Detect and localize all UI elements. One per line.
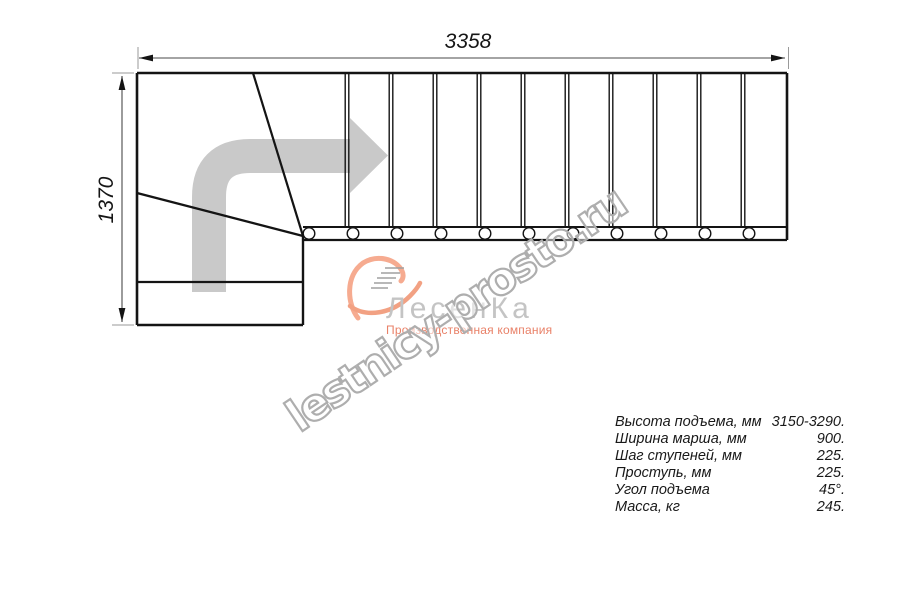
spec-value: 900. (817, 431, 845, 448)
spec-value: 245. (817, 499, 845, 516)
spec-value: 225. (817, 465, 845, 482)
spec-row: Угол подъема 45°. (615, 482, 845, 499)
spec-label: Шаг ступеней, мм (615, 448, 742, 465)
spec-value: 225. (817, 448, 845, 465)
spec-value: 3150-3290. (772, 414, 845, 431)
spec-row: Проступь, мм 225. (615, 465, 845, 482)
spec-label: Масса, кг (615, 499, 680, 516)
top-dimension-label: 3358 (400, 30, 536, 54)
spec-row: Масса, кг 245. (615, 499, 845, 516)
logo-steps-lines (371, 268, 404, 288)
spec-label: Угол подъема (615, 482, 710, 499)
spec-label: Высота подъема, мм (615, 414, 762, 431)
tread-division-lines (345, 73, 745, 226)
spec-label: Проступь, мм (615, 465, 711, 482)
left-dimension-label: 1370 (95, 154, 117, 246)
spec-label: Ширина марша, мм (615, 431, 747, 448)
spec-row: Ширина марша, мм 900. (615, 431, 845, 448)
spec-table: Высота подъема, мм 3150-3290. Ширина мар… (615, 414, 845, 516)
spec-row: Шаг ступеней, мм 225. (615, 448, 845, 465)
spec-value: 45°. (819, 482, 845, 499)
spec-row: Высота подъема, мм 3150-3290. (615, 414, 845, 431)
